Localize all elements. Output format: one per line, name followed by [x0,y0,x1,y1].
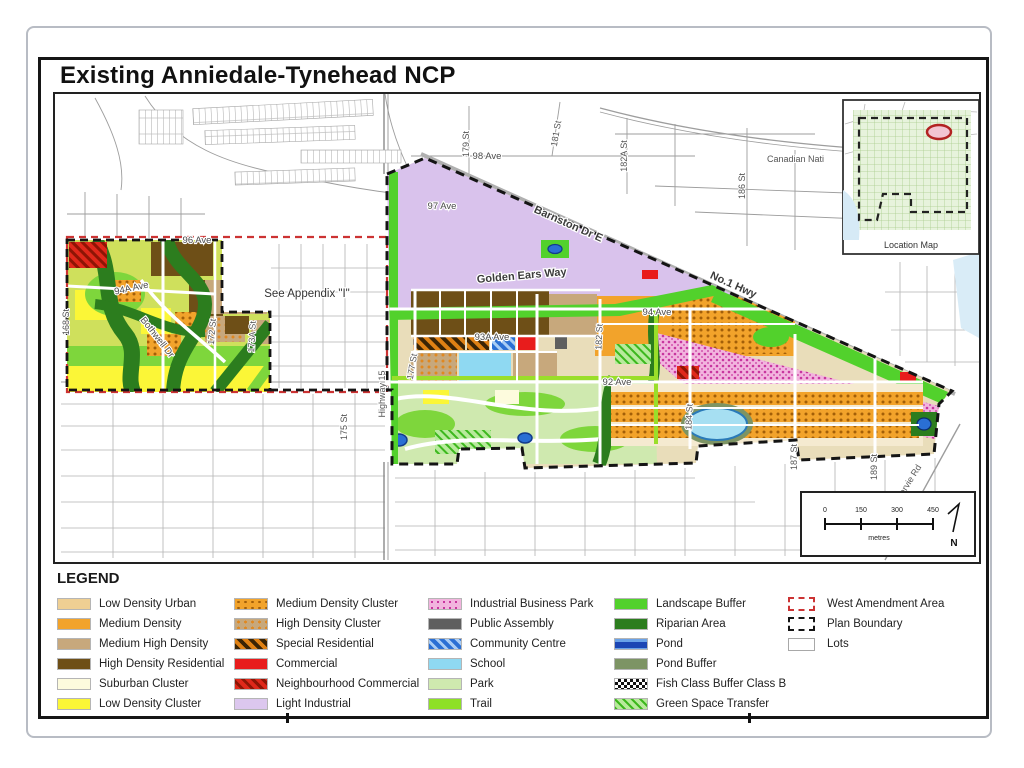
plan-map-svg: 98 Ave 179 St 181 St 182A St 186 St Cana… [55,94,979,562]
west-section-landuse [67,240,270,392]
legend-swatch-special-residential [234,638,268,650]
legend-swatch-high-density-cluster [234,618,268,630]
label-see-appendix: See Appendix "I" [264,288,350,300]
inset-caption: Location Map [884,240,938,250]
north-label: N [950,538,957,549]
label-182-st: 182 St [593,323,604,350]
label-173a-st: 173A St [246,320,258,353]
legend-swatch-low-density-urban [57,598,91,610]
subdivision-blocks [139,99,401,185]
legend-swatch-west-amendment-area [788,597,815,611]
legend-column-1: Low Density Urban Medium Density Medium … [57,594,224,714]
legend-swatch-fish-class-buffer [614,678,648,690]
label-181-st: 181 St [549,119,563,147]
legend-swatch-neighbourhood-commercial [234,678,268,690]
label-98-ave: 98 Ave [473,151,502,162]
legend-column-2: Medium Density Cluster High Density Clus… [234,594,419,714]
legend-swatch-landscape-buffer [614,598,648,610]
legend-swatch-green-space-transfer [614,698,648,710]
scale-unit: metres [868,535,890,542]
scale-tick-300: 300 [891,507,903,514]
legend-column-5: West Amendment Area Plan Boundary Lots [788,594,944,654]
legend-swatch-medium-density-cluster [234,598,268,610]
scale-tick-150: 150 [855,507,867,514]
plan-map: 98 Ave 179 St 181 St 182A St 186 St Cana… [53,92,981,564]
label-93a-ave: 93A Ave [475,332,510,343]
legend-swatch-low-density-cluster [57,698,91,710]
scale-tick-0: 0 [823,507,827,514]
label-175-st: 175 St [339,413,349,440]
label-97-ave: 97 Ave [428,201,457,212]
scale-bar: 0 150 300 450 metres N [801,492,975,556]
label-92-ave: 92 Ave [603,377,632,388]
legend-swatch-pond [614,638,648,650]
page-title: Existing Anniedale-Tynehead NCP [60,62,456,90]
label-96-ave: 96 Ave [183,235,212,246]
label-168-st: 168 St [61,308,71,335]
scale-tick-450: 450 [927,507,939,514]
location-map-inset: Location Map [843,100,979,254]
label-186-st: 186 St [737,172,747,199]
legend-swatch-plan-boundary [788,617,815,631]
legend-swatch-trail [428,698,462,710]
label-highway-15: Highway 15 [377,370,387,417]
label-canadian-national: Canadian Nati [767,154,824,164]
label-182a-st: 182A St [619,140,629,172]
slide-stage: Existing Anniedale-Tynehead NCP [0,0,1024,768]
legend: LEGEND Low Density Urban Medium Density … [41,566,981,712]
legend-swatch-high-density-residential [57,658,91,670]
label-187-st: 187 St [789,443,799,470]
label-189-st: 189 St [869,453,879,480]
legend-swatch-public-assembly [428,618,462,630]
legend-swatch-commercial [234,658,268,670]
inset-plan-area-marker [927,125,951,139]
frame-tick-left [286,713,289,723]
label-179-st: 179 St [461,130,471,157]
legend-swatch-medium-density [57,618,91,630]
water-area-ne [953,252,979,338]
legend-swatch-light-industrial [234,698,268,710]
legend-swatch-school [428,658,462,670]
frame-tick-right [748,713,751,723]
legend-swatch-pond-buffer [614,658,648,670]
legend-swatch-medium-high-density [57,638,91,650]
label-94-ave: 94 Ave [643,307,672,318]
legend-column-3: Industrial Business Park Public Assembly… [428,594,593,714]
legend-swatch-industrial-business-park [428,598,462,610]
legend-swatch-community-centre [428,638,462,650]
label-184-st: 184 St [683,403,694,430]
legend-swatch-suburban-cluster [57,678,91,690]
legend-swatch-park [428,678,462,690]
legend-column-4: Landscape Buffer Riparian Area Pond Pond… [614,594,786,714]
legend-swatch-lots [788,638,815,651]
legend-title: LEGEND [57,570,120,587]
legend-swatch-riparian-area [614,618,648,630]
